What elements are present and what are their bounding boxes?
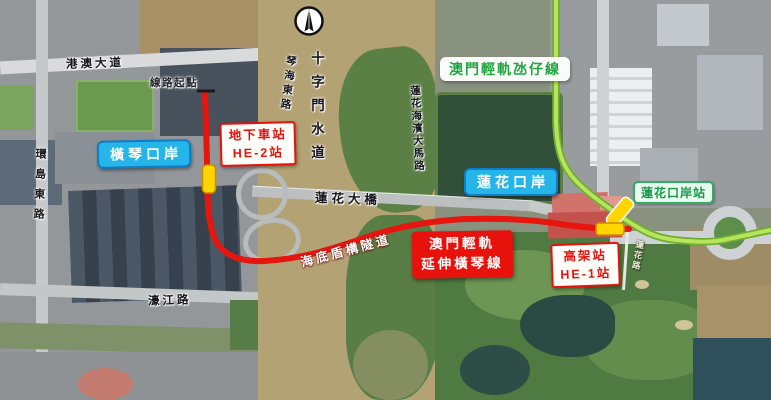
extension-line-name-1: 澳門輕軌 <box>421 233 504 255</box>
satellite-map: 港澳大道 環島東路 線路起點 橫琴口岸 地下車站 HE-2站 琴海東路 十字門水… <box>0 0 771 400</box>
lotus-bridge-label: 蓮花大橋 <box>315 187 382 208</box>
he1-station-type: 高架站 <box>559 246 611 266</box>
lotus-port-station-label: 蓮花口岸站 <box>633 181 714 204</box>
he1-station-code: HE-1站 <box>560 264 612 284</box>
he1-station-label: 高架站 HE-1站 <box>550 242 620 289</box>
line-start-label: 線路起點 <box>150 75 198 90</box>
he1-station-marker <box>596 223 624 235</box>
north-compass-icon <box>296 8 323 35</box>
road-label-huandao-east: 環島東路 <box>30 148 49 229</box>
road-label-haojiang: 濠江路 <box>148 291 192 309</box>
he2-station-marker <box>203 165 216 193</box>
he2-station-label: 地下車站 HE-2站 <box>219 121 296 167</box>
lotus-port-label: 蓮花口岸 <box>464 168 558 196</box>
taipa-line-label: 澳門輕軌氹仔線 <box>440 57 570 81</box>
extension-line-label: 澳門輕軌 延伸橫琴線 <box>412 230 513 278</box>
taipa-line-casing <box>556 0 771 242</box>
taipa-line-route <box>556 0 771 242</box>
waterway-label-shizimen: 十字門水道 <box>306 51 326 169</box>
hengqin-port-label: 橫琴口岸 <box>97 139 191 169</box>
he2-station-type: 地下車站 <box>229 125 287 145</box>
road-label-gangao: 港澳大道 <box>66 54 125 72</box>
he2-station-code: HE-2站 <box>229 143 287 163</box>
extension-line-name-2: 延伸橫琴線 <box>421 254 504 276</box>
